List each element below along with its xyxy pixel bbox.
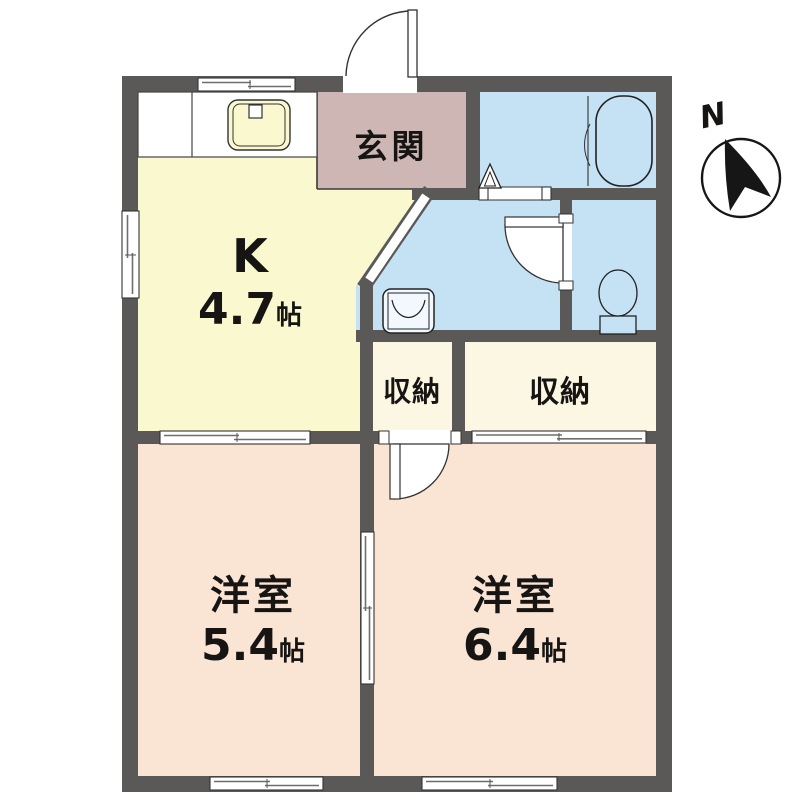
room-size: 5.4帖	[201, 624, 305, 668]
wall-row-mid-d	[646, 431, 672, 444]
wall-kitchen-right	[360, 283, 373, 443]
wall-entrance-right	[466, 92, 480, 189]
entrance-label: 玄関	[317, 122, 466, 166]
faucet-icon	[249, 105, 262, 118]
toilet	[599, 270, 637, 334]
sliding-door-storage	[472, 431, 646, 443]
wall-row-mid-b	[310, 431, 388, 444]
kitchen-label: K 4.7帖	[140, 232, 360, 332]
room-name: 洋室	[472, 576, 558, 616]
window-kitchen-left	[122, 211, 139, 298]
window-room-right	[422, 777, 557, 790]
room-size: 6.4帖	[463, 624, 567, 668]
opening-bath-washroom	[479, 187, 551, 200]
window-kitchen-top	[198, 78, 295, 91]
entrance-opening	[343, 75, 417, 93]
toilet-bowl	[599, 270, 637, 316]
wall-row-mid-a	[122, 431, 160, 444]
washbasin	[383, 289, 434, 333]
kitchen-name: K	[232, 232, 268, 280]
western-room-left-label: 洋室 5.4帖	[138, 576, 368, 668]
compass	[702, 139, 780, 217]
kitchen-counter	[138, 92, 317, 157]
toilet-tank	[600, 316, 636, 334]
floor-plan-page: 玄関 K 4.7帖 収納 収納 洋室 5.4帖 洋室 6.4帖 N	[0, 0, 800, 800]
room-name: 洋室	[210, 576, 296, 616]
sliding-door-kitchen-room	[160, 431, 310, 444]
wall-bottom	[122, 776, 672, 792]
kitchen-size: 4.7帖	[198, 288, 302, 332]
window-room-left	[210, 777, 323, 790]
entrance-door-panel	[408, 10, 417, 77]
western-room-right-label: 洋室 6.4帖	[374, 576, 656, 668]
storage-left-label: 収納	[362, 372, 462, 408]
entrance-door-arc	[346, 11, 412, 76]
storage-right-label: 収納	[466, 370, 654, 408]
